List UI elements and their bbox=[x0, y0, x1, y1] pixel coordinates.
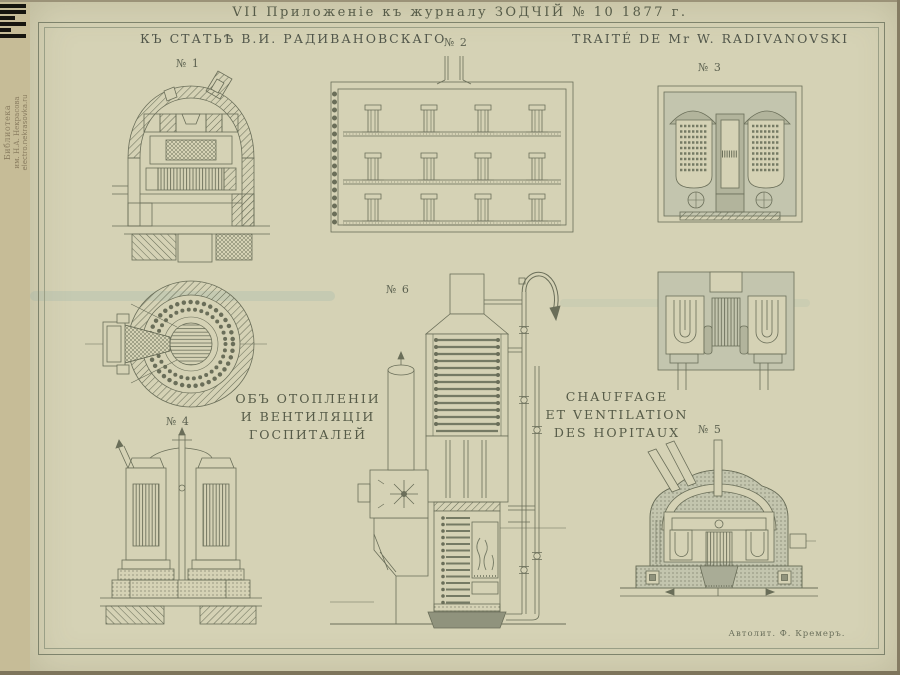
door-cap-bottom bbox=[117, 365, 129, 374]
chimney bbox=[450, 274, 484, 314]
nekrasovka-logo-bar bbox=[0, 22, 26, 26]
swan-neck-arrow bbox=[550, 306, 560, 320]
core-flue bbox=[170, 323, 212, 365]
outer-wall bbox=[331, 82, 573, 232]
stove-unit-left bbox=[118, 458, 174, 580]
scanned-plate-page: Библиотека им. Н.А. Некрасова electro.ne… bbox=[0, 0, 900, 675]
pier-left bbox=[146, 168, 158, 190]
foundation-hatch bbox=[216, 234, 252, 260]
figure-round-stove-plan bbox=[85, 270, 267, 417]
header-russian: КЪ СТАТЬѢ В.И. РАДИВАНОВСКАГО bbox=[140, 31, 446, 46]
chimney-link-pipe bbox=[484, 300, 522, 304]
stove-unit-right bbox=[188, 458, 244, 580]
grate-bar bbox=[434, 502, 500, 511]
central-pedestal bbox=[706, 532, 732, 566]
watermark-site-url: electro.nekrasovka.ru bbox=[21, 50, 30, 215]
valve bbox=[519, 327, 529, 334]
platform bbox=[112, 580, 250, 598]
hearth-lines bbox=[140, 194, 242, 203]
base-block-left-core bbox=[650, 575, 656, 581]
upper-chamber-core bbox=[166, 140, 216, 160]
ground-arrow-left bbox=[666, 589, 674, 595]
top-duct bbox=[710, 272, 742, 292]
nekrasovka-logo-bar bbox=[0, 4, 26, 8]
base-band bbox=[680, 212, 780, 220]
pipe-connectors bbox=[506, 348, 539, 620]
foundation-hatch bbox=[132, 234, 176, 260]
lithographer-signature: Автолит. Ф. Кремеръ. bbox=[712, 629, 862, 639]
foundation-hatch bbox=[200, 606, 256, 624]
side-register bbox=[790, 534, 806, 548]
figure-4-twin-stoves bbox=[100, 426, 262, 624]
figure-label-3: № 3 bbox=[698, 61, 722, 74]
cornice-course bbox=[144, 114, 238, 132]
fire-door-frame bbox=[103, 322, 125, 366]
library-watermark: Библиотека им. Н.А. Некрасова electro.ne… bbox=[4, 50, 30, 215]
library-spine-strip: Библиотека им. Н.А. Некрасова electro.ne… bbox=[0, 0, 31, 675]
figure-label-2: № 2 bbox=[444, 36, 468, 49]
branch-pipes bbox=[150, 448, 212, 458]
pedestal bbox=[716, 194, 744, 212]
right-wall bbox=[242, 158, 254, 226]
pedestal bbox=[428, 612, 506, 628]
valve bbox=[532, 427, 542, 434]
post-left bbox=[704, 326, 712, 354]
fan-inlet bbox=[358, 484, 370, 502]
central-grid bbox=[712, 298, 740, 346]
plate-title: VII Приложеніе къ журналу ЗОДЧІЙ № 10 18… bbox=[190, 5, 730, 20]
nekrasovka-logo-bar bbox=[0, 16, 15, 20]
ground-lines bbox=[112, 226, 270, 234]
pier-right bbox=[224, 168, 236, 190]
mid-section bbox=[426, 436, 508, 502]
nekrasovka-logo-bar bbox=[0, 34, 26, 38]
standpipe-cylinder bbox=[388, 370, 414, 470]
cylinder-top bbox=[388, 365, 414, 375]
left-ledge bbox=[112, 186, 128, 194]
figure-6-calorifer bbox=[330, 270, 566, 632]
ash-pit bbox=[178, 234, 212, 262]
central-pipe bbox=[172, 434, 192, 580]
cylinder-arrow bbox=[398, 352, 404, 359]
watermark-library-name-2: им. Н.А. Некрасова bbox=[13, 50, 22, 215]
foundation-hatch bbox=[106, 606, 164, 624]
figure-2-plan bbox=[323, 54, 581, 252]
figure-3-coil-section bbox=[650, 78, 810, 236]
nekrasovka-logo-bar bbox=[0, 10, 26, 14]
thin-pipe-arrow bbox=[116, 440, 123, 448]
flue-stubs bbox=[362, 105, 548, 221]
figure-5-arched-furnace bbox=[620, 436, 818, 618]
firebox-core bbox=[158, 168, 224, 190]
pipe-arrow bbox=[179, 428, 185, 435]
valve bbox=[532, 553, 542, 560]
door-cap-top bbox=[117, 314, 129, 323]
riser-pipes bbox=[522, 292, 539, 614]
ground-lines bbox=[100, 598, 262, 606]
valve bbox=[519, 397, 529, 404]
damper bbox=[179, 485, 185, 491]
base-band bbox=[434, 604, 500, 612]
valve bbox=[519, 567, 529, 574]
scan-edge-top bbox=[0, 0, 900, 2]
ground-arrow-right bbox=[766, 589, 774, 595]
left-wall bbox=[128, 158, 140, 226]
fan-hub bbox=[401, 491, 406, 496]
nekrasovka-logo-bar bbox=[0, 28, 11, 32]
watermark-library-name: Библиотека bbox=[4, 50, 13, 215]
base-block-right-core bbox=[782, 575, 788, 581]
header-french: TRAITÉ DE Mr W. RADIVANOVSKI bbox=[572, 31, 849, 46]
pedestal-foot bbox=[700, 566, 738, 588]
post-right bbox=[740, 326, 748, 354]
figure-label-5: № 5 bbox=[698, 423, 722, 436]
channel-bands bbox=[343, 132, 561, 225]
hopper bbox=[374, 518, 428, 576]
chimney-duct bbox=[437, 56, 471, 84]
figure-3-loop-section bbox=[650, 266, 802, 394]
tube-stack-box bbox=[426, 334, 508, 436]
top-pipe bbox=[714, 440, 722, 496]
taper-hood bbox=[426, 314, 508, 334]
scan-edge-bottom bbox=[0, 671, 900, 675]
figure-1-furnace-section bbox=[112, 66, 270, 264]
